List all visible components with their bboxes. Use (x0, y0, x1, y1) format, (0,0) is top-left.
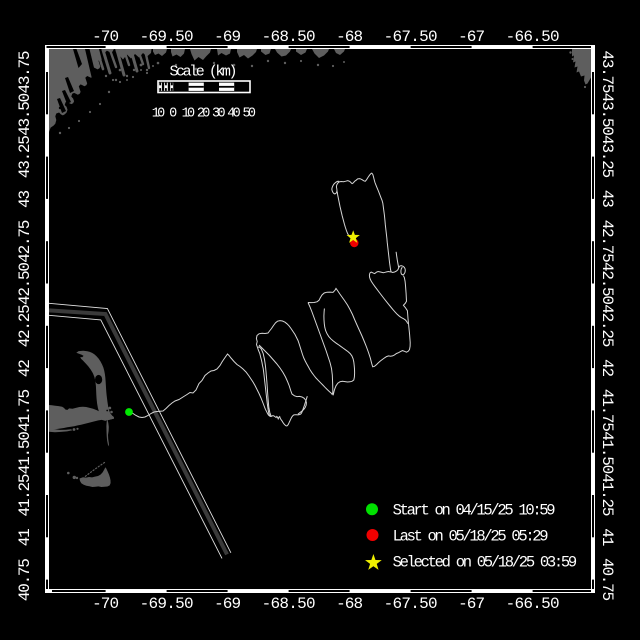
svg-text:43: 43 (16, 190, 34, 208)
svg-text:-67.50: -67.50 (384, 595, 438, 613)
svg-text:43.75: 43.75 (598, 51, 616, 94)
svg-text:-68.50: -68.50 (262, 28, 316, 46)
svg-text:10: 10 (182, 107, 196, 122)
svg-text:42.75: 42.75 (598, 220, 616, 263)
svg-text:-69: -69 (214, 28, 241, 46)
svg-text:41.50: 41.50 (598, 431, 616, 474)
svg-text:40: 40 (227, 107, 241, 122)
svg-text:50: 50 (242, 107, 256, 122)
svg-text:40.75: 40.75 (598, 558, 616, 601)
svg-text:-68: -68 (336, 595, 363, 613)
svg-text:41.75: 41.75 (598, 389, 616, 432)
svg-text:41: 41 (16, 528, 34, 546)
svg-text:42.50: 42.50 (598, 262, 616, 305)
svg-text:41.25: 41.25 (598, 474, 616, 517)
svg-text:-66.50: -66.50 (506, 595, 560, 613)
svg-text:43.50: 43.50 (598, 93, 616, 136)
svg-text:43.50: 43.50 (16, 93, 34, 136)
svg-text:-68.50: -68.50 (262, 595, 316, 613)
svg-text:43.75: 43.75 (16, 51, 34, 94)
svg-text:41: 41 (598, 528, 616, 546)
svg-text:-66.50: -66.50 (506, 28, 560, 46)
svg-text:Selected on 05/18/25 03:59: Selected on 05/18/25 03:59 (393, 554, 578, 572)
svg-text:10: 10 (152, 107, 166, 122)
svg-text:-69.50: -69.50 (140, 28, 194, 46)
svg-text:Start on 04/15/25 10:59: Start on 04/15/25 10:59 (393, 502, 556, 520)
svg-text:-69.50: -69.50 (140, 595, 194, 613)
svg-text:41.50: 41.50 (16, 431, 34, 474)
svg-text:40.75: 40.75 (16, 558, 34, 601)
svg-text:Scale (km): Scale (km) (170, 64, 238, 81)
svg-text:-67: -67 (458, 28, 485, 46)
svg-text:42: 42 (598, 359, 616, 377)
svg-text:-70: -70 (92, 595, 119, 613)
svg-text:42.25: 42.25 (598, 304, 616, 347)
svg-text:Last on 05/18/25 05:29: Last on 05/18/25 05:29 (393, 528, 549, 546)
svg-text:-69: -69 (214, 595, 241, 613)
svg-text:42.50: 42.50 (16, 262, 34, 305)
svg-text:43.25: 43.25 (598, 135, 616, 178)
svg-text:0: 0 (169, 107, 177, 122)
svg-text:20: 20 (197, 107, 211, 122)
svg-text:41.75: 41.75 (16, 389, 34, 432)
svg-text:-67.50: -67.50 (384, 28, 438, 46)
svg-text:43: 43 (598, 190, 616, 208)
svg-text:42: 42 (16, 359, 34, 377)
svg-text:30: 30 (212, 107, 226, 122)
svg-text:43.25: 43.25 (16, 135, 34, 178)
svg-text:41.25: 41.25 (16, 474, 34, 517)
svg-text:-70: -70 (92, 28, 119, 46)
svg-text:42.75: 42.75 (16, 220, 34, 263)
svg-text:42.25: 42.25 (16, 304, 34, 347)
svg-text:-68: -68 (336, 28, 363, 46)
svg-text:-67: -67 (458, 595, 485, 613)
